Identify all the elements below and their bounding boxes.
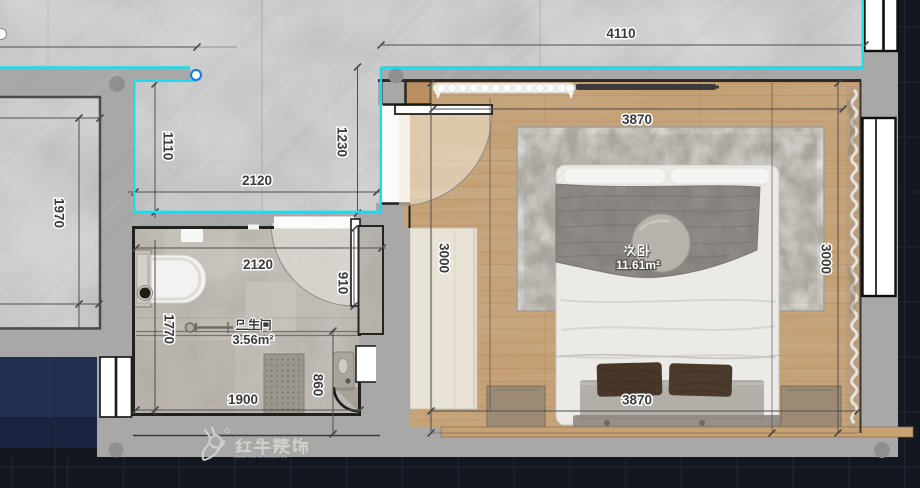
svg-text:2120: 2120 [243,257,273,272]
svg-text:1900: 1900 [228,392,258,407]
svg-text:910: 910 [336,272,351,295]
svg-text:1110: 1110 [161,132,176,161]
svg-text:11.61m²: 11.61m² [616,258,660,272]
svg-text:3000: 3000 [819,244,834,274]
svg-text:3000: 3000 [437,243,452,273]
svg-text:3.56m²: 3.56m² [232,332,274,347]
svg-text:2120: 2120 [242,173,272,188]
svg-text:3870: 3870 [622,112,652,127]
svg-text:HONG NIU DECORATION: HONG NIU DECORATION [234,455,287,459]
svg-text:1970: 1970 [52,198,67,228]
svg-text:1230: 1230 [335,127,350,157]
svg-text:3870: 3870 [622,393,652,408]
svg-text:1770: 1770 [162,314,177,344]
svg-text:4110: 4110 [606,26,635,41]
svg-text:860: 860 [311,374,326,397]
